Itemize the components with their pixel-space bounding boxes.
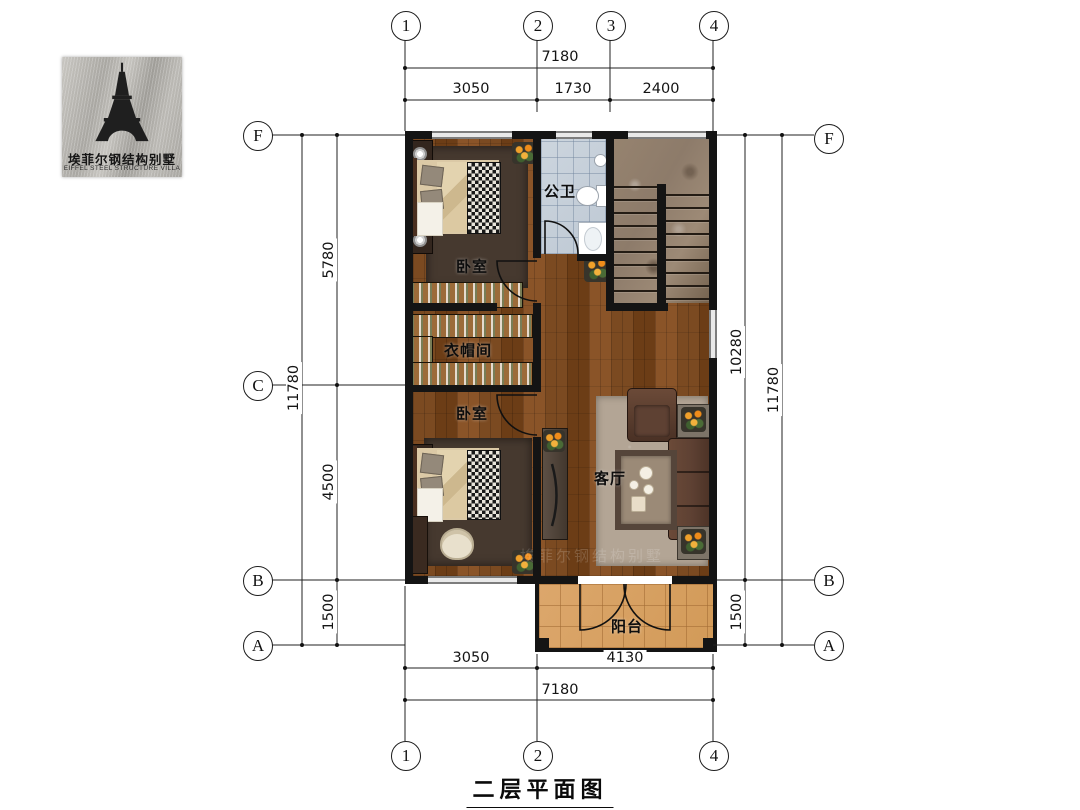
wall-hall-middle <box>533 303 541 392</box>
dim-right-1: 10280 <box>729 326 745 378</box>
bed-pillow <box>420 453 444 476</box>
grid-bubble-top-1: 1 <box>391 11 421 41</box>
dim-bottom-1: 3050 <box>450 650 493 666</box>
room-label-bedroom1: 卧室 <box>456 256 488 277</box>
stair-flight-right <box>666 194 709 303</box>
window-top-bedroom1 <box>432 131 512 139</box>
bathroom-sink <box>578 222 608 256</box>
room-label-balcony: 阳台 <box>611 616 643 637</box>
eiffel-tower-icon <box>87 61 157 147</box>
window-bottom-bedroom2 <box>428 576 517 584</box>
window-top-stairs <box>628 131 706 139</box>
grid-bubble-top-3: 3 <box>596 11 626 41</box>
sink-basin <box>584 227 602 251</box>
grid-bubble-bottom-4: 4 <box>699 741 729 771</box>
bed-pillow <box>420 165 444 188</box>
window-top-bathroom <box>556 131 592 139</box>
bed-blanket <box>467 162 501 234</box>
grid-bubble-bottom-1: 1 <box>391 741 421 771</box>
floor-plan-sheet: 埃菲尔钢结构别墅 EIFFEL STEEL STRUCTURE VILLA 1 … <box>0 0 1080 810</box>
wall-stair-bottom <box>614 303 668 311</box>
cup <box>639 466 653 480</box>
dim-top-total: 7180 <box>539 49 582 65</box>
dim-left-3: 1500 <box>321 591 337 634</box>
wall-cloakroom-bedroom2 <box>405 385 541 392</box>
grid-bubble-right-F: F <box>814 124 844 154</box>
plant-tv-console <box>543 430 565 452</box>
company-logo: 埃菲尔钢结构别墅 EIFFEL STEEL STRUCTURE VILLA <box>62 57 182 177</box>
bedroom2-bed <box>409 446 501 522</box>
bed-blanket <box>467 450 501 520</box>
grid-bubble-top-4: 4 <box>699 11 729 41</box>
bedroom1-bed <box>409 158 501 236</box>
grid-bubble-right-A: A <box>814 631 844 661</box>
wall-hall-lower <box>533 437 541 576</box>
logo-title-en: EIFFEL STEEL STRUCTURE VILLA <box>62 165 182 172</box>
living-coffee-table <box>615 450 677 530</box>
room-label-living: 客厅 <box>594 468 626 489</box>
room-label-cloakroom: 衣帽间 <box>444 340 492 361</box>
room-label-bathroom: 公卫 <box>544 181 576 202</box>
bed-sheet <box>417 202 443 236</box>
dim-top-3: 2400 <box>640 81 683 97</box>
dim-left-2: 4500 <box>321 461 337 504</box>
dim-right-total: 11780 <box>766 364 782 416</box>
wall-exterior-bottom-right <box>672 576 717 584</box>
cup <box>643 484 654 495</box>
dim-top-1: 3050 <box>450 81 493 97</box>
tray <box>631 496 646 512</box>
grid-bubble-left-F: F <box>243 121 273 151</box>
toilet-bowl <box>576 186 599 206</box>
balcony-post-right <box>703 638 717 652</box>
wall-hall-upper <box>533 139 541 258</box>
wall-bedroom1-cloakroom <box>405 303 497 311</box>
stair-flight-left <box>614 186 657 303</box>
bedroom2-chair <box>440 528 474 560</box>
grid-bubble-right-B: B <box>814 566 844 596</box>
window-right-living <box>709 310 717 358</box>
living-armchair <box>627 388 677 442</box>
dim-bottom-2: 4130 <box>604 650 647 666</box>
dim-bottom-total: 7180 <box>539 682 582 698</box>
cloakroom-closet-top <box>409 314 533 338</box>
wall-stair-left <box>606 139 614 311</box>
plant-side-bottom <box>681 529 706 554</box>
grid-bubble-top-2: 2 <box>523 11 553 41</box>
cup <box>629 480 639 490</box>
dim-left-total: 11780 <box>286 362 302 414</box>
grid-bubble-left-B: B <box>243 566 273 596</box>
balcony-post-left <box>535 638 549 652</box>
stair-divider <box>657 184 666 303</box>
grid-bubble-left-C: C <box>243 371 273 401</box>
dim-top-2: 1730 <box>552 81 595 97</box>
sheet-title: 二层平面图 <box>466 772 613 810</box>
room-label-bedroom2: 卧室 <box>456 403 488 424</box>
dim-left-1: 5780 <box>321 239 337 282</box>
plant-side-top <box>681 407 706 432</box>
grid-bubble-left-A: A <box>243 631 273 661</box>
wall-exterior-left <box>405 131 413 584</box>
watermark-text: 埃菲尔钢结构别墅 <box>520 545 664 566</box>
grid-bubble-bottom-2: 2 <box>523 741 553 771</box>
dim-right-2: 1500 <box>729 591 745 634</box>
